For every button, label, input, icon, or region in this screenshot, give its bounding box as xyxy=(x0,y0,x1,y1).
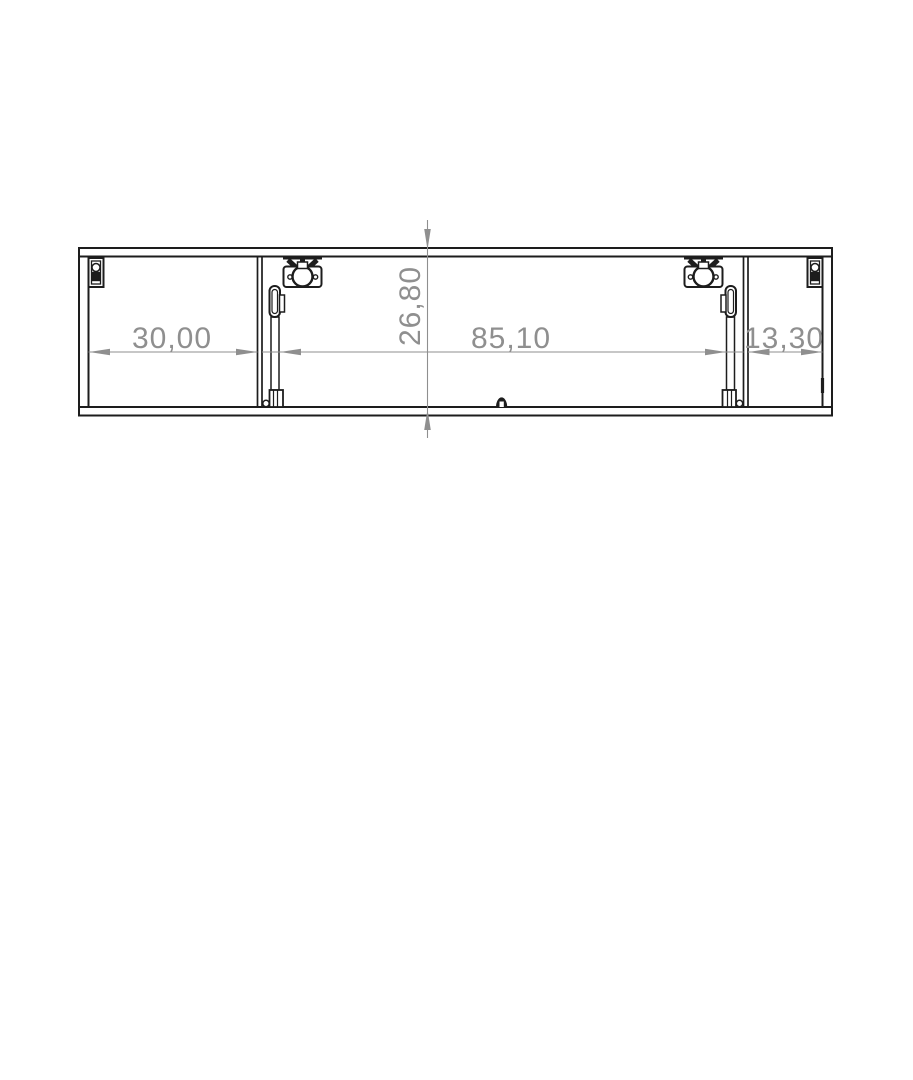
technical-drawing-canvas: 30,00 85,10 13,30 26,80 xyxy=(0,0,913,1080)
hanging-bracket-left xyxy=(89,258,104,287)
dimensions: 30,00 85,10 13,30 26,80 xyxy=(89,220,825,438)
hanging-bracket-right xyxy=(808,258,823,287)
cup-hinge-right xyxy=(684,256,723,288)
dim-label-depth: 26,80 xyxy=(394,266,427,346)
left-divider-panel xyxy=(258,257,263,408)
cable-grommet-icon xyxy=(496,397,507,407)
cup-hinge-left xyxy=(283,256,322,288)
dim-label-middle-width: 85,10 xyxy=(471,322,551,355)
left-side-panel xyxy=(79,257,89,408)
dim-label-right-width: 13,30 xyxy=(744,322,824,355)
lift-strut-right xyxy=(721,286,743,407)
lift-strut-left xyxy=(263,286,285,407)
bottom-panel xyxy=(79,407,832,416)
top-panel xyxy=(79,248,832,257)
dim-label-left-width: 30,00 xyxy=(132,322,212,355)
